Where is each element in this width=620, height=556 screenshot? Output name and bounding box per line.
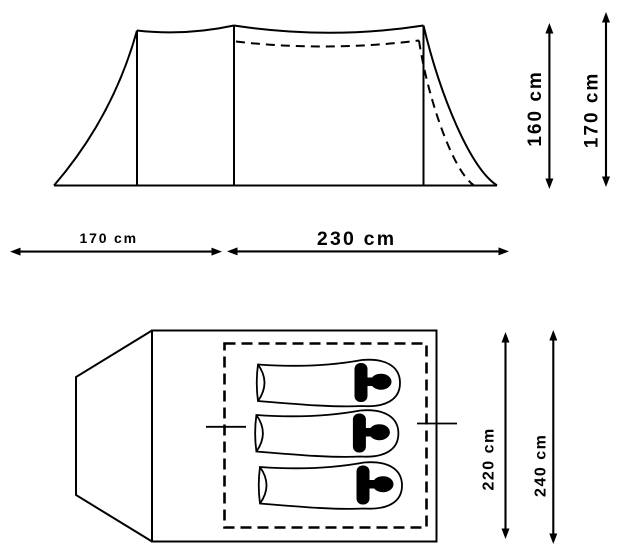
svg-text:170 cm: 170 cm xyxy=(582,72,603,148)
svg-text:220 cm: 220 cm xyxy=(481,427,498,490)
svg-text:170 cm: 170 cm xyxy=(80,230,138,246)
svg-text:230 cm: 230 cm xyxy=(317,228,396,250)
svg-text:160 cm: 160 cm xyxy=(525,70,546,146)
svg-text:240 cm: 240 cm xyxy=(532,434,549,497)
